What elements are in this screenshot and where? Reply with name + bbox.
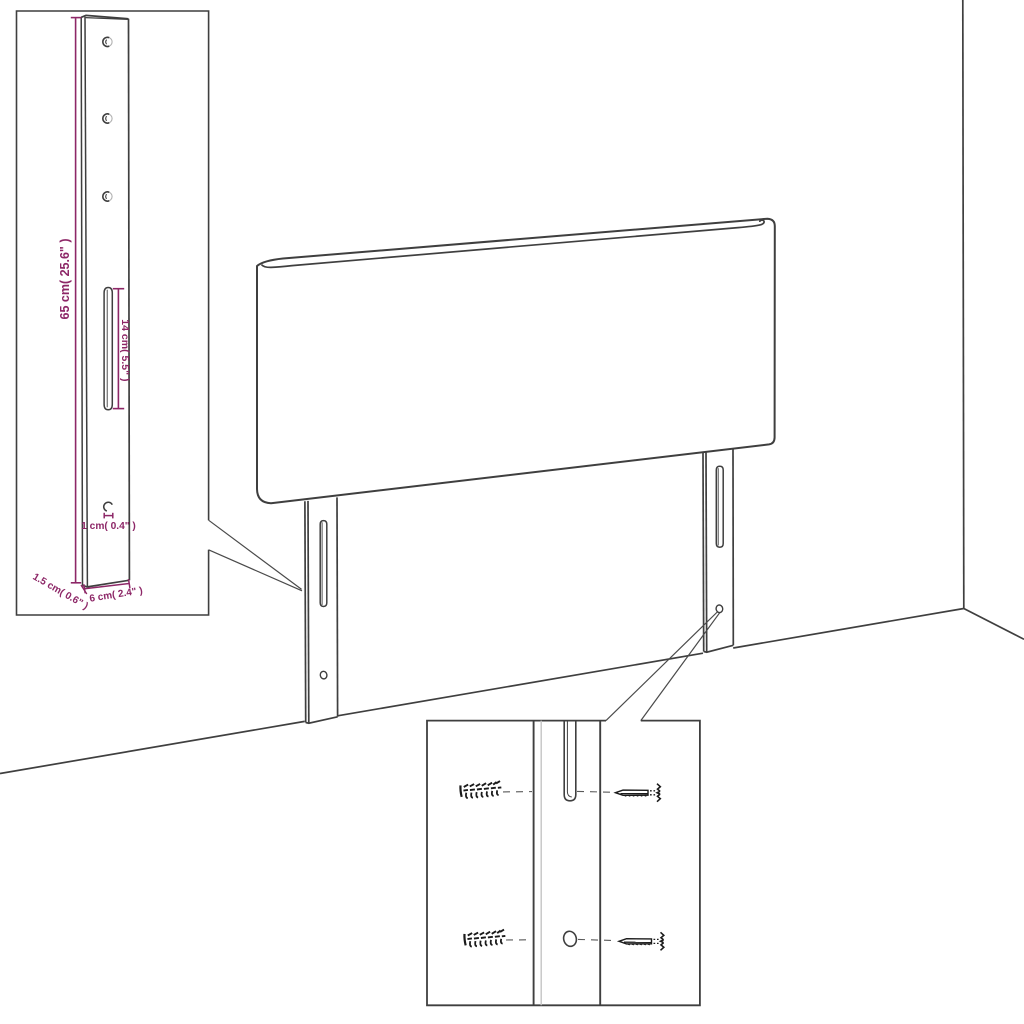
svg-text:65 cm( 25.6" ): 65 cm( 25.6" ) — [58, 239, 72, 320]
svg-text:14 cm( 5.5" ): 14 cm( 5.5" ) — [119, 319, 131, 381]
svg-text:1 cm( 0.4" ): 1 cm( 0.4" ) — [81, 521, 136, 532]
